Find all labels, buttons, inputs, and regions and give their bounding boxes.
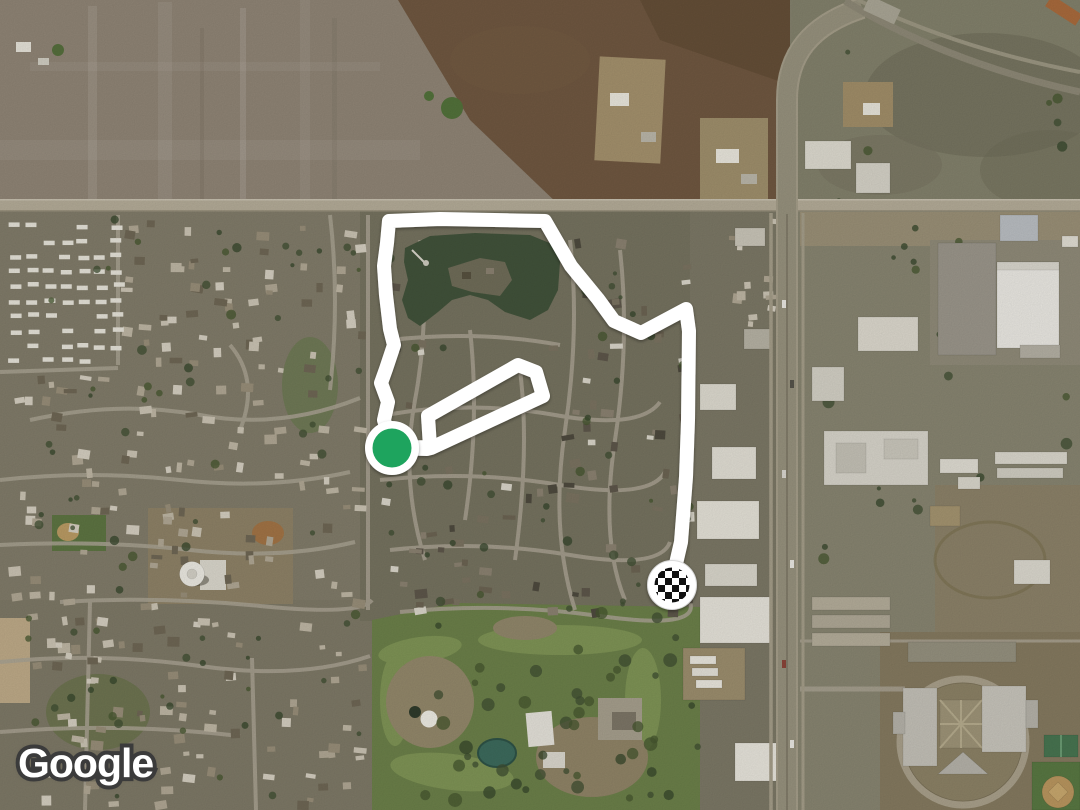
satellite-imagery <box>0 0 1080 810</box>
route-finish-marker <box>648 561 697 610</box>
route-start-marker <box>365 421 419 475</box>
google-logo-text: Google <box>18 740 153 786</box>
google-logo[interactable]: Google Google <box>18 740 153 787</box>
map-canvas[interactable]: Google Google <box>0 0 1080 810</box>
